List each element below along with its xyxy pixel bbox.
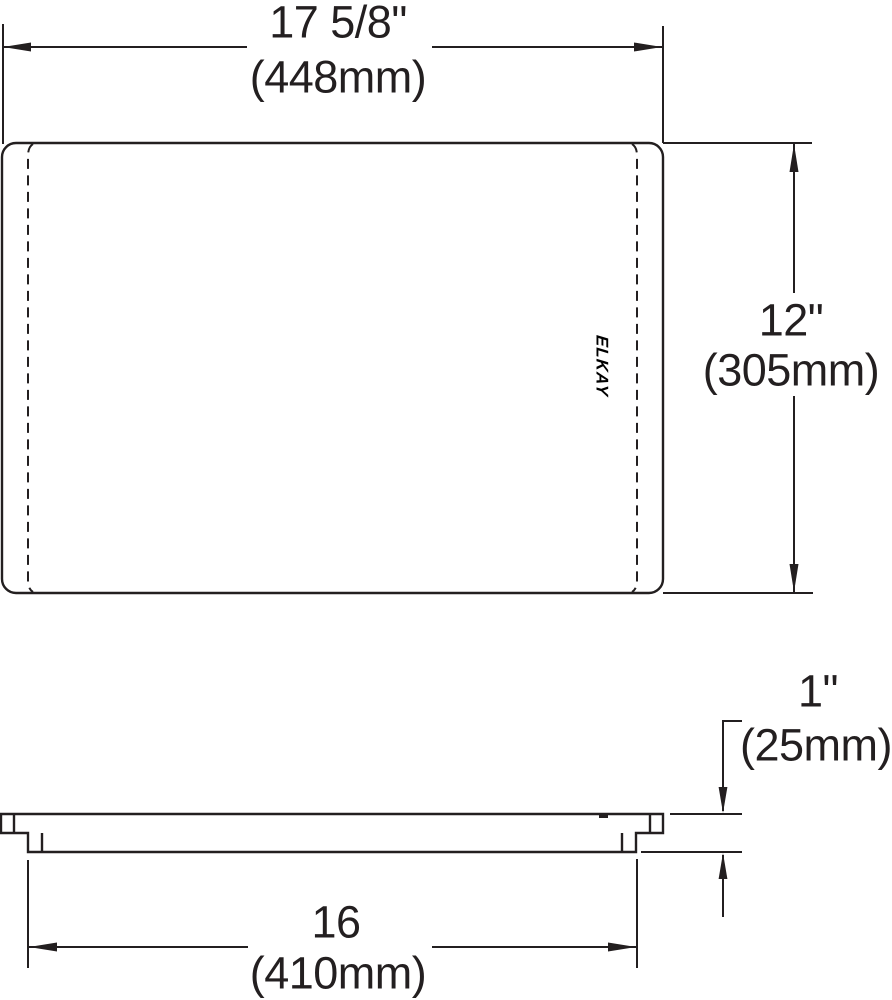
- arrowhead-right-icon: [634, 43, 662, 52]
- technical-drawing-canvas: 17 5/8" (448mm) 12" (305mm) 1" (25mm) 16…: [0, 0, 892, 1000]
- arrowhead-down-icon: [719, 787, 728, 813]
- profile-outline: [1, 814, 663, 852]
- plan-view: [2, 143, 663, 593]
- board-outline: [2, 143, 663, 593]
- elkay-logo: ELKAY: [594, 334, 611, 397]
- arrowhead-right-icon: [608, 943, 636, 952]
- arrowhead-left-icon: [3, 43, 31, 52]
- hidden-edge-left: [28, 144, 33, 592]
- arrowhead-left-icon: [29, 943, 57, 952]
- arrowhead-up-icon: [790, 144, 799, 172]
- side-height-mm-label: (305mm): [703, 348, 880, 393]
- arrowhead-down-icon: [790, 564, 799, 592]
- thickness-dimension: [641, 721, 742, 917]
- base-width-inches-label: 16: [311, 900, 360, 945]
- thickness-mm-label: (25mm): [740, 723, 892, 768]
- top-width-mm-label: (448mm): [250, 55, 427, 100]
- drawing-linework: [0, 0, 892, 1000]
- base-width-mm-label: (410mm): [250, 951, 427, 996]
- logo-edge-mark: [599, 814, 608, 819]
- thickness-inches-label: 1": [798, 669, 838, 714]
- profile-view: [1, 814, 663, 853]
- hidden-edge-right: [632, 144, 637, 592]
- side-height-inches-label: 12": [759, 298, 824, 343]
- top-width-inches-label: 17 5/8": [269, 0, 407, 45]
- arrowhead-up-icon: [719, 853, 728, 879]
